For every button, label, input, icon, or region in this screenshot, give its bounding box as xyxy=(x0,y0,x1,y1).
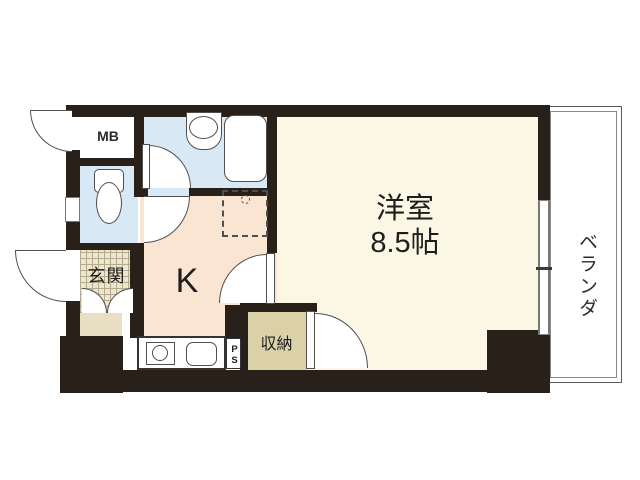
wall-left-3 xyxy=(66,301,80,338)
main-window-center-tick xyxy=(536,267,552,270)
bath-sink-oval xyxy=(189,116,218,139)
bathroom-door-leaf xyxy=(142,144,150,189)
kitchen-label: K xyxy=(142,262,232,301)
wall-bath-bottom-left xyxy=(134,188,148,196)
toilet-window xyxy=(65,197,80,222)
pipe-space-label: PS xyxy=(228,341,240,369)
toilet-bowl xyxy=(96,182,122,224)
wall-right-bottom xyxy=(538,335,550,375)
main-room-size: 8.5帖 xyxy=(330,226,480,260)
entrance-door-swing xyxy=(15,250,66,302)
entrance-label: 玄関 xyxy=(80,262,133,288)
wall-bottom-left-block xyxy=(60,336,123,393)
main-room-door-leaf xyxy=(266,253,275,304)
main-room-name: 洋室 xyxy=(330,192,480,226)
veranda-label: ベランダ xyxy=(570,196,600,356)
main-room-label: 洋室 8.5帖 xyxy=(330,192,480,260)
stove-burner-icon xyxy=(152,345,168,361)
mb-label: MB xyxy=(80,128,136,144)
wall-ps-stub xyxy=(225,305,248,338)
storage-door-leaf xyxy=(306,311,315,369)
kitchen-sink xyxy=(186,342,217,366)
storage-label: 収納 xyxy=(246,330,307,354)
refrigerator-icon xyxy=(241,195,250,204)
wall-bottom xyxy=(122,370,490,392)
wall-mb-toilet xyxy=(78,158,138,166)
wall-kitchen-main-divider xyxy=(267,112,277,253)
entrance-step xyxy=(80,313,122,336)
wall-right-top xyxy=(538,105,550,200)
mb-door-swing xyxy=(30,110,72,152)
floor-plan: MB 玄関 K 収納 PS 洋室 8.5帖 ベランダ xyxy=(0,0,640,480)
bathtub xyxy=(224,115,267,182)
